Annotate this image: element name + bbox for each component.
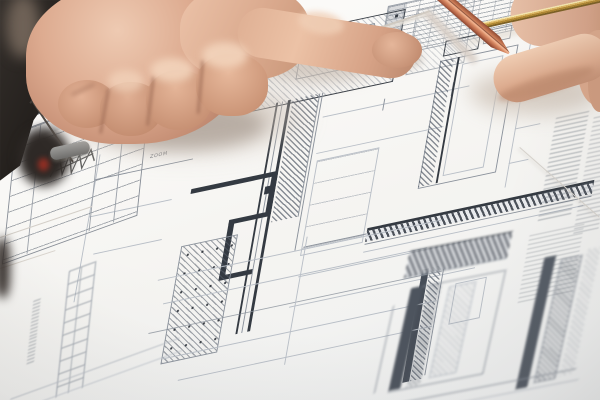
table-sliver-left <box>0 238 10 298</box>
dimension-tick <box>509 159 529 164</box>
knuckle-highlight <box>202 42 248 68</box>
dimension-tick <box>382 99 385 111</box>
steel-profile-step <box>228 211 270 225</box>
knuckle-highlight <box>150 58 194 82</box>
red-object-blur <box>38 158 49 171</box>
left-fingertip <box>372 32 422 68</box>
brick-column-strip <box>56 261 97 398</box>
dimension-tick <box>515 123 541 129</box>
knuckle-highlight <box>108 70 144 92</box>
blueprint-photo: ZOOM <box>0 0 600 400</box>
rotated-note-text <box>26 298 40 366</box>
